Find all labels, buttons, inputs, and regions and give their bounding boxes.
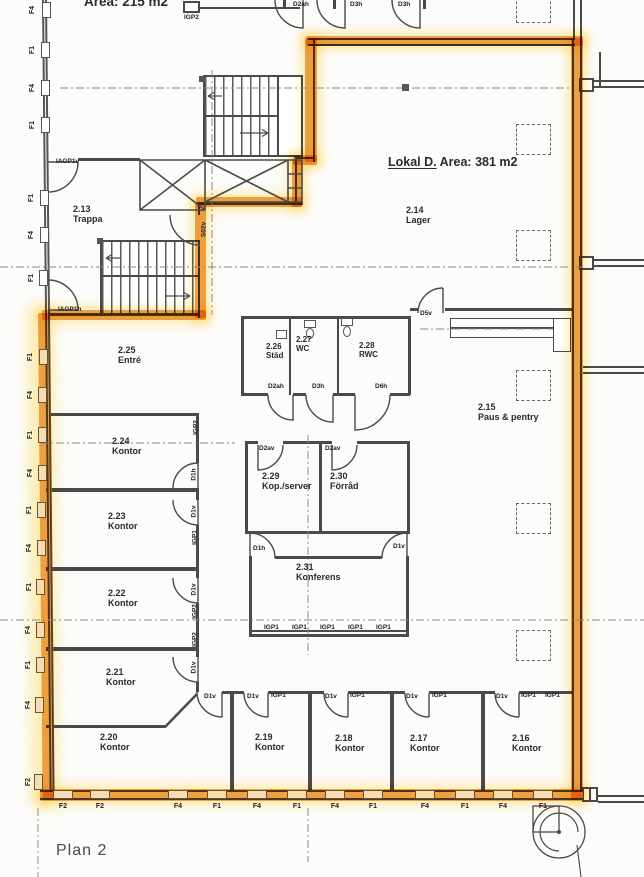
room-label-wc: 2.27WC — [296, 336, 312, 353]
door-label: D3h — [350, 1, 362, 8]
area-label-partial: Area: 215 m2 — [84, 0, 168, 9]
door-label: IGP2 — [184, 14, 199, 21]
window-label: F1 — [26, 502, 34, 518]
door-label: D2av — [325, 445, 341, 452]
toilet-tank — [304, 320, 316, 328]
door-label: D1v — [496, 693, 508, 700]
lokal-area: Area: 381 m2 — [440, 155, 518, 169]
window — [455, 790, 475, 799]
room-name: WC — [296, 345, 312, 354]
window — [38, 387, 47, 403]
room-label-paus: 2.15Paus & pentry — [478, 403, 539, 422]
door-label: IAGP1h — [58, 306, 81, 313]
toilet-tank — [341, 318, 353, 326]
partition-label: IGP2 — [192, 628, 199, 652]
room-name: Kontor — [410, 744, 440, 754]
room-label-entre: 2.25Entré — [118, 346, 141, 365]
partition-label: IGP1 — [271, 692, 286, 699]
door-label: D3h — [398, 1, 410, 8]
room-label-kontor-218: 2.18Kontor — [335, 734, 365, 753]
window — [36, 579, 45, 595]
door-label: D1v — [406, 693, 418, 700]
partition-label: IGP2 — [193, 416, 200, 440]
room-name: Entré — [118, 356, 141, 366]
room-label-kontor-222: 2.22Kontor — [108, 589, 138, 608]
window-label: F4 — [25, 697, 33, 713]
window — [37, 540, 46, 556]
window-label: F2 — [92, 803, 108, 811]
room-label-forrad: 2.30Förråd — [330, 472, 359, 491]
window — [415, 790, 435, 799]
floor-plan-canvas: Area: 215 m2 Lokal D. Area: 381 m2 2.13T… — [0, 0, 644, 877]
window-label: F4 — [495, 803, 511, 811]
window — [42, 2, 51, 18]
window-label: F2 — [25, 774, 33, 790]
window-label: F4 — [26, 540, 34, 556]
window — [363, 790, 383, 799]
room-label-kop-server: 2.29Kop./server — [262, 472, 312, 491]
partition-label: IGP1 — [521, 692, 536, 699]
toilet-bowl — [343, 326, 351, 337]
window — [38, 465, 47, 481]
lokal-name: Lokal D. — [388, 155, 437, 169]
plan-title: Plan 2 — [56, 842, 107, 860]
window — [40, 190, 49, 206]
window-label: F1 — [209, 803, 225, 811]
room-label-rwc: 2.28RWC — [359, 342, 378, 359]
partition-label: IGP2 — [192, 600, 199, 624]
elevator-shafts — [140, 160, 302, 210]
window-label: F1 — [29, 117, 37, 133]
window — [533, 790, 553, 799]
window — [35, 697, 44, 713]
window-label: F1 — [26, 579, 34, 595]
door-label: D2ah — [293, 1, 309, 8]
window-label: F1 — [457, 803, 473, 811]
room-name: Kontor — [255, 743, 285, 753]
plan-linework-layer — [0, 0, 644, 877]
partition-label: IGP1 — [432, 692, 447, 699]
partition-label: IGP1 — [545, 692, 560, 699]
window-label: F1 — [27, 349, 35, 365]
partition-label: IGP1 — [264, 624, 279, 631]
window-label: F4 — [27, 387, 35, 403]
window-label: F4 — [170, 803, 186, 811]
partition-label: IGP1 — [376, 624, 391, 631]
room-name: Lager — [406, 216, 431, 226]
window-label: F4 — [25, 622, 33, 638]
window — [53, 790, 73, 799]
door-label: D3h — [312, 383, 324, 390]
room-label-kontor-223: 2.23Kontor — [108, 512, 138, 531]
window — [207, 790, 227, 799]
sink — [276, 330, 287, 339]
partition-label: IGP1 — [292, 624, 307, 631]
room-label-kontor-216: 2.16Kontor — [512, 734, 542, 753]
door-label: IAGP1v — [56, 158, 79, 165]
door-label: D5v — [420, 310, 432, 317]
window — [40, 227, 49, 243]
room-name: Kop./server — [262, 482, 312, 492]
window-label: F1 — [365, 803, 381, 811]
window-label: F1 — [535, 803, 551, 811]
window — [247, 790, 267, 799]
room-name: Kontor — [100, 743, 130, 753]
grid-lines — [0, 70, 644, 877]
room-label-stad: 2.26Städ — [266, 343, 283, 360]
partition-label: IGP1 — [192, 526, 199, 550]
room-name: Kontor — [512, 744, 542, 754]
door-label: D1h — [253, 545, 265, 552]
window — [36, 657, 45, 673]
room-label-konferens: 2.31Konferens — [296, 563, 341, 582]
window-label: F1 — [28, 270, 36, 286]
partition-label: IGP1 — [348, 624, 363, 631]
window-label: F4 — [28, 227, 36, 243]
door-label: D2ah — [268, 383, 284, 390]
window — [38, 427, 47, 443]
window-label: F4 — [27, 465, 35, 481]
window-label: F1 — [29, 42, 37, 58]
window — [325, 790, 345, 799]
room-name: Konferens — [296, 573, 341, 583]
partition-label: IGP1 — [320, 624, 335, 631]
door-label: D1v — [393, 543, 405, 550]
window — [36, 622, 45, 638]
window — [34, 774, 43, 790]
detail-circle — [533, 806, 585, 877]
room-name: Kontor — [106, 678, 136, 688]
room-label-kontor-220: 2.20Kontor — [100, 733, 130, 752]
room-name: Förråd — [330, 482, 359, 492]
door-label: S02v — [201, 218, 208, 242]
window-label: F4 — [417, 803, 433, 811]
door-label: D1v — [204, 693, 216, 700]
room-label-kontor-221: 2.21Kontor — [106, 668, 136, 687]
door-label: D1v — [247, 693, 259, 700]
window-label: F4 — [29, 80, 37, 96]
door-label: D1v — [191, 578, 198, 602]
door-label: D1v — [325, 693, 337, 700]
window — [41, 80, 50, 96]
window — [90, 790, 110, 799]
window-label: F1 — [25, 657, 33, 673]
window — [37, 502, 46, 518]
room-label-trappa: 2.13Trappa — [73, 205, 103, 224]
room-label-lager: 2.14Lager — [406, 206, 431, 225]
door-label: D1h — [191, 463, 198, 487]
room-label-kontor-224: 2.24Kontor — [112, 437, 142, 456]
room-name: Paus & pentry — [478, 413, 539, 423]
window — [41, 42, 50, 58]
window — [39, 349, 48, 365]
room-label-kontor-219: 2.19Kontor — [255, 733, 285, 752]
room-name: Städ — [266, 352, 283, 361]
door-label: D1v — [191, 500, 198, 524]
room-name: Kontor — [112, 447, 142, 457]
window-label: F4 — [327, 803, 343, 811]
lokal-d-label: Lokal D. Area: 381 m2 — [388, 155, 517, 170]
window-label: F1 — [28, 190, 36, 206]
window — [41, 117, 50, 133]
room-name: Kontor — [335, 744, 365, 754]
room-name: Kontor — [108, 522, 138, 532]
window-label: F1 — [27, 427, 35, 443]
room-name: RWC — [359, 351, 378, 360]
room-label-kontor-217: 2.17Kontor — [410, 734, 440, 753]
door-label: D1v — [191, 656, 198, 680]
window — [287, 790, 307, 799]
window-label: F4 — [249, 803, 265, 811]
diagonal-wall — [165, 694, 197, 727]
window — [39, 270, 48, 286]
window-label: F4 — [29, 2, 37, 18]
window — [493, 790, 513, 799]
door-label: D2av — [259, 445, 275, 452]
window — [168, 790, 188, 799]
partition-label: IGP1 — [350, 692, 365, 699]
door-label: D6h — [375, 383, 387, 390]
room-name: Trappa — [73, 215, 103, 225]
window-label: F2 — [55, 803, 71, 811]
room-name: Kontor — [108, 599, 138, 609]
window-label: F1 — [289, 803, 305, 811]
